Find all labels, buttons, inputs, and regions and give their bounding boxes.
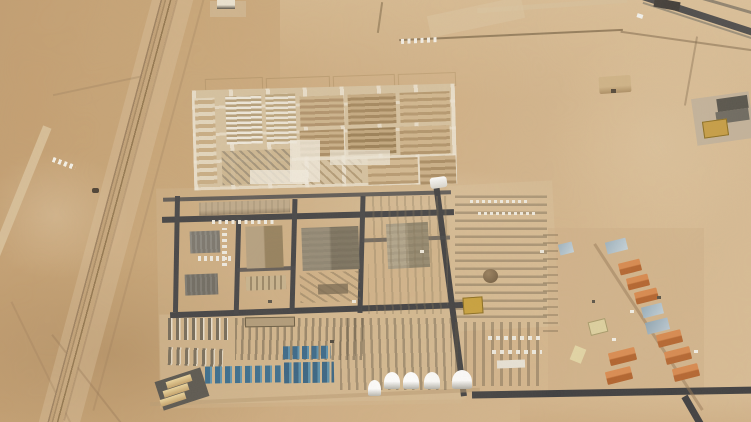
center-structures-clutter: [368, 196, 448, 314]
complex-vehicle-dot-4: [592, 300, 595, 303]
yard-vehicle-dot-5: [540, 250, 544, 253]
warehouse-2: [301, 226, 359, 271]
east-yard-white-row-2: [478, 212, 536, 215]
yard-clutter-west: [168, 318, 228, 340]
yard-vehicle-dot-1: [352, 300, 356, 303]
tent-block-4: [347, 93, 396, 125]
complex-vehicle-dot-3: [612, 338, 616, 341]
dark-object-left-desert: [92, 188, 99, 193]
sand-mottle-right-light: [545, 30, 751, 260]
complex-vehicle-dot-2: [657, 296, 661, 299]
tent-block-white-2: [265, 93, 297, 144]
bunker-door: [611, 89, 616, 93]
yard-vehicle-dot-4: [330, 340, 334, 343]
tent-city-gravel-2: [330, 150, 390, 165]
clamshell-tent-5: [452, 370, 472, 389]
tent-block-5: [399, 91, 450, 123]
tent-city-gravel-3: [250, 170, 308, 184]
white-building-long: [497, 360, 525, 369]
tent-row-left-strip: [195, 98, 218, 185]
tent-block-8: [400, 125, 451, 155]
trailer-row-3: [212, 220, 274, 224]
tent-block-3: [299, 95, 344, 127]
warehouse-1: [245, 225, 283, 268]
aerial-photo-stage: [0, 0, 751, 422]
complex-west-clutter: [543, 232, 558, 332]
building-dark-north: [190, 230, 221, 253]
gate-building-roof: [217, 0, 235, 9]
yard-clutter-west-2: [168, 347, 224, 367]
white-building-row-2: [492, 350, 542, 354]
gold-square-building: [702, 118, 729, 138]
clamshell-tent-3: [403, 372, 419, 389]
yard-vehicle-dot-2: [420, 250, 424, 253]
clamshell-tent-2: [384, 372, 400, 389]
container-row-teal-1: [283, 346, 331, 360]
clamshell-tent-4: [424, 372, 440, 389]
yard-vehicle-dot-3: [268, 300, 272, 303]
trailer-row-2: [198, 256, 234, 261]
complex-vehicle-dot-5: [694, 350, 698, 353]
complex-vehicle-dot-1: [630, 310, 634, 313]
container-row-teal-3: [284, 362, 334, 384]
photo-canvas: [0, 0, 751, 422]
long-thin-building: [245, 317, 295, 328]
east-yard-white-row-1: [470, 200, 530, 203]
white-canopy-building: [429, 176, 447, 189]
small-buildings-south-1: [246, 275, 286, 290]
building-dark-south: [185, 273, 219, 295]
white-building-row-1: [488, 336, 544, 340]
gold-building: [462, 296, 483, 314]
tent-block-white-1: [225, 95, 263, 144]
radome-dome: [483, 269, 498, 283]
mid-structures-clutter: [299, 271, 360, 303]
clamshell-tent-1: [368, 380, 381, 396]
container-row-teal-2: [205, 365, 281, 383]
